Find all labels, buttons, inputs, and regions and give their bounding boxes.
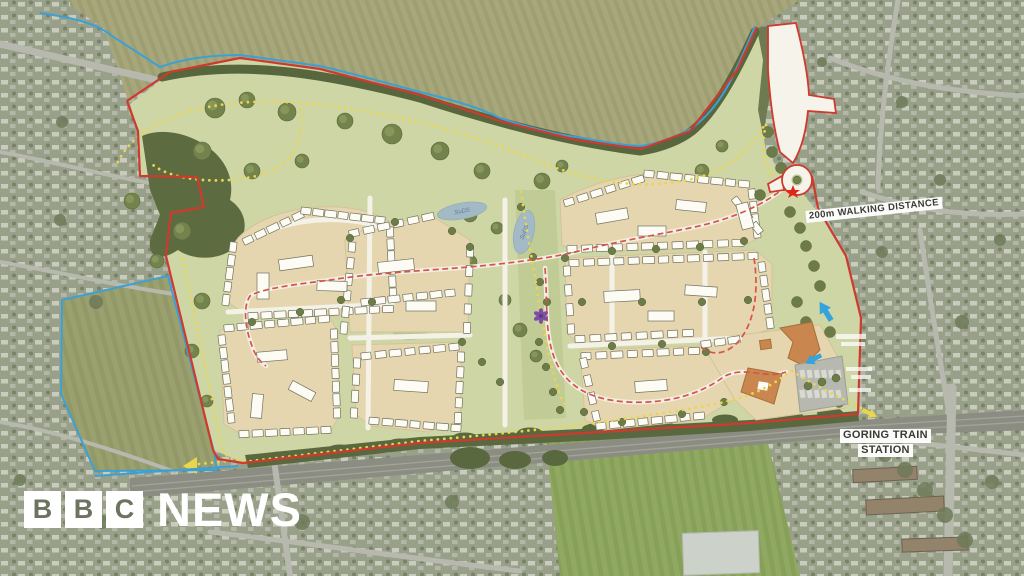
- station-label-line1: GORING TRAIN: [840, 429, 931, 443]
- car-park: [795, 356, 848, 412]
- bbc-news-text: NEWS: [157, 491, 302, 528]
- station-label: GORING TRAIN STATION: [840, 429, 931, 457]
- masterplan-map: SuDS SuDS: [0, 0, 1024, 576]
- bbc-news-logo: B B C NEWS: [24, 491, 302, 528]
- bbc-block-2: B: [65, 491, 102, 528]
- bbc-block-3: C: [106, 491, 143, 528]
- bbc-block-1: B: [24, 491, 61, 528]
- station-label-line2: STATION: [858, 444, 913, 458]
- news-image: SuDS SuDS: [0, 0, 1024, 576]
